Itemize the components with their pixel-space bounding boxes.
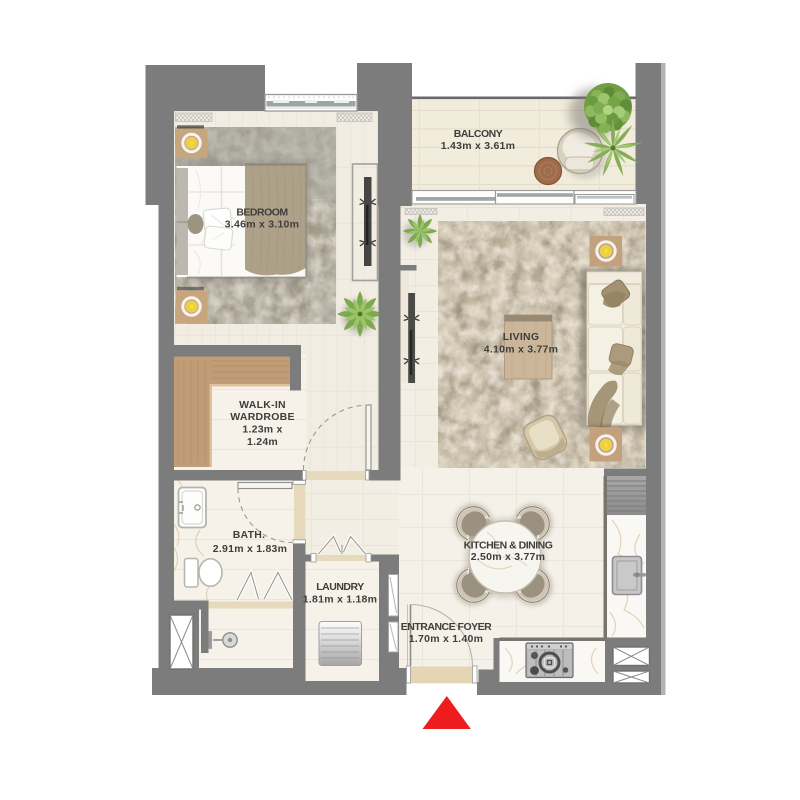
svg-text:1.24m: 1.24m: [247, 436, 278, 448]
svg-text:3.46m x 3.10m: 3.46m x 3.10m: [225, 219, 299, 231]
svg-text:2.50m x 3.77m: 2.50m x 3.77m: [471, 551, 545, 563]
svg-text:1.43m x 3.61m: 1.43m x 3.61m: [441, 140, 515, 152]
svg-text:BEDROOM: BEDROOM: [236, 207, 288, 219]
svg-text:4.10m x 3.77m: 4.10m x 3.77m: [484, 344, 558, 356]
svg-text:KITCHEN & DINING: KITCHEN & DINING: [464, 540, 553, 552]
svg-text:LIVING: LIVING: [503, 331, 540, 343]
svg-text:BALCONY: BALCONY: [454, 128, 503, 140]
svg-text:LAUNDRY: LAUNDRY: [316, 581, 364, 593]
svg-text:2.91m x 1.83m: 2.91m x 1.83m: [213, 543, 287, 555]
svg-text:WARDROBE: WARDROBE: [230, 411, 294, 423]
svg-text:BATH.: BATH.: [233, 529, 266, 541]
svg-text:WALK-IN: WALK-IN: [239, 399, 286, 411]
svg-text:1.81m x 1.18m: 1.81m x 1.18m: [303, 594, 377, 606]
svg-text:1.23m x: 1.23m x: [242, 424, 282, 436]
svg-text:ENTRANCE FOYER: ENTRANCE FOYER: [401, 621, 492, 633]
svg-text:1.70m x 1.40m: 1.70m x 1.40m: [409, 633, 483, 645]
